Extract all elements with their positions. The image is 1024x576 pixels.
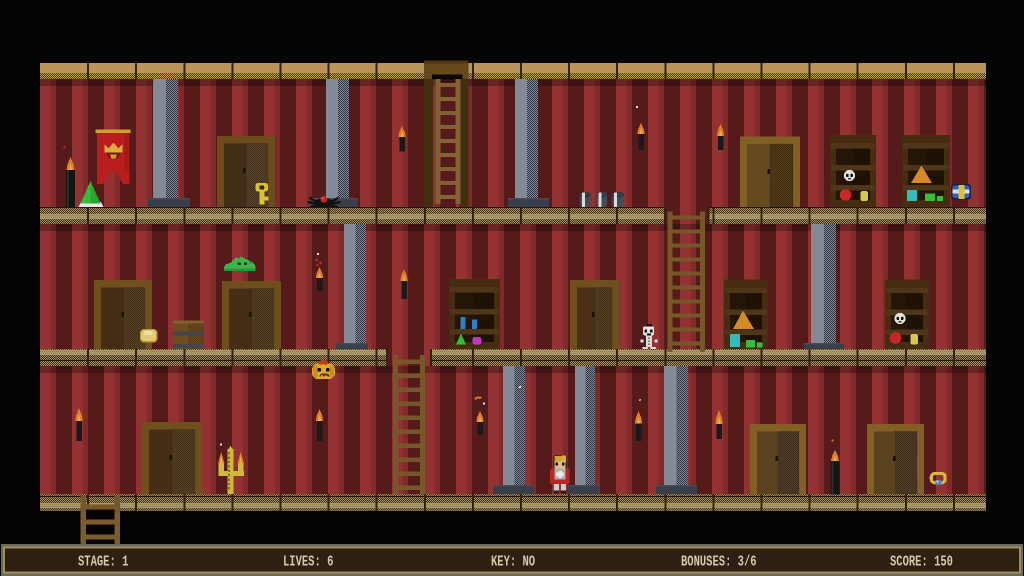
svg-text:STAGE: 1: STAGE: 1	[78, 553, 129, 570]
svg-text:BONUSES: 3/6: BONUSES: 3/6	[681, 553, 757, 570]
svg-text:LIVES: 6: LIVES: 6	[283, 553, 333, 570]
svg-text:SCORE: 150: SCORE: 150	[890, 553, 953, 570]
svg-text:KEY: NO: KEY: NO	[491, 553, 535, 570]
